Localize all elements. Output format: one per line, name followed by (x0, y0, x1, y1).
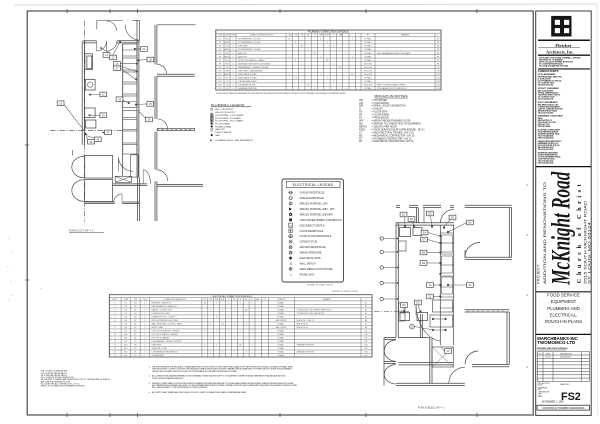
svg-text:1: 1 (339, 85, 340, 87)
svg-text:= 1000 BTU PER HOUR: = 1000 BTU PER HOUR (372, 126, 397, 128)
svg-text:P4: P4 (219, 49, 221, 51)
svg-text:CW: CW (226, 46, 229, 48)
svg-text:FOOD SERVICE: FOOD SERVICE (547, 293, 580, 298)
svg-text:3: 3 (246, 352, 247, 354)
svg-text:TEL FAX SAME: TEL FAX SAME (538, 125, 551, 128)
svg-text:2: 2 (144, 317, 145, 319)
svg-text:E9: E9 (422, 261, 426, 265)
svg-text:HW: HW (226, 70, 229, 72)
svg-text:E1: E1 (125, 303, 127, 305)
svg-text:WIRE TABLE W SINK: WIRE TABLE W SINK (238, 77, 257, 80)
svg-text:IN FLOOR: IN FLOOR (364, 70, 373, 72)
svg-text:HW: HW (226, 39, 229, 41)
svg-text:ABV CEILING: ABV CEILING (276, 326, 287, 329)
svg-text:HWCO: HWCO (224, 74, 230, 76)
svg-text:2: 2 (320, 56, 321, 58)
svg-text:OF WALL: OF WALL (364, 87, 371, 90)
svg-text:ELECTRICAL CONNECTION SCHEDULE: ELECTRICAL CONNECTION SCHEDULE (212, 295, 252, 298)
svg-text:E5: E5 (125, 317, 127, 319)
svg-text:E13: E13 (124, 345, 127, 347)
svg-text:P6: P6 (437, 56, 439, 58)
svg-text:E16: E16 (124, 355, 127, 357)
svg-text:ROUGH-IN PLANS: ROUGH-IN PLANS (545, 319, 582, 324)
svg-text:3: 3 (233, 88, 234, 90)
svg-text:= COLD WATER: = COLD WATER (372, 102, 389, 105)
svg-text:PLUMBING AND: PLUMBING AND (547, 306, 579, 311)
svg-text:EQUIPMENT: EQUIPMENT (551, 299, 577, 304)
svg-text:1: 1 (333, 46, 334, 48)
svg-text:1: 1 (327, 78, 328, 80)
svg-text:3: 3 (144, 320, 145, 322)
svg-text:WIRING PRESSURE: WIRING PRESSURE (300, 253, 322, 255)
svg-text:P9: P9 (437, 67, 439, 69)
svg-text:1: 1 (346, 53, 347, 55)
svg-text:1: 1 (314, 70, 315, 72)
svg-text:OF WALL: OF WALL (364, 41, 371, 44)
svg-text:E6: E6 (125, 320, 127, 322)
svg-text:TEL (636) 527-0800: TEL (636) 527-0800 (538, 149, 553, 151)
svg-text:PLAN A CUT 1/4" = 1': PLAN A CUT 1/4" = 1' (69, 229, 95, 233)
svg-text:SUPPLY FAN: SUPPLY FAN (152, 326, 164, 329)
svg-text:3: 3 (210, 310, 211, 312)
svg-text:1: 1 (233, 39, 234, 41)
svg-text:McKnight Road: McKnight Road (546, 171, 575, 285)
svg-text:4: 4 (115, 313, 116, 315)
svg-text:E2: E2 (365, 306, 367, 308)
svg-text:IN WALL: IN WALL (278, 333, 285, 336)
svg-text:1: 1 (234, 352, 235, 354)
svg-text:ICE MAKER FILTER: ICE MAKER FILTER (238, 84, 256, 87)
svg-text:5: 5 (222, 310, 223, 312)
svg-text:= DRAIN - SOLID CONNECTION: = DRAIN - SOLID CONNECTION (372, 105, 406, 108)
svg-text:1/2: 1/2 (288, 39, 290, 41)
svg-text:CONVENIENCE RECEPTACLE: CONVENIENCE RECEPTACLE (152, 351, 179, 354)
svg-text:8: 8 (228, 317, 229, 319)
svg-text:Church of Christ: Church of Christ (576, 183, 583, 283)
svg-text:2: 2 (233, 85, 234, 87)
svg-text:6: 6 (234, 338, 235, 340)
svg-text:4: 4 (204, 317, 205, 319)
svg-text:= BRANCH TO CONNECTION OF EQUI: = BRANCH TO CONNECTION OF EQUIPMENT (372, 122, 422, 125)
svg-text:6: 6 (210, 352, 211, 354)
svg-text:IN WALL: IN WALL (278, 309, 285, 312)
svg-text:ELECTRICAL LEGEND: ELECTRICAL LEGEND (293, 183, 334, 187)
svg-text:E11: E11 (365, 338, 368, 340)
svg-text:TYPICAL 120V ONLY, VERIFY, SEE: TYPICAL 120V ONLY, VERIFY, SEE NOTE 2 (297, 309, 332, 312)
svg-text:IN WALL: IN WALL (278, 354, 285, 357)
svg-text:TEL (314) 432-0102: TEL (314) 432-0102 (538, 97, 553, 100)
svg-text:IN WALL: IN WALL (278, 337, 285, 340)
svg-text:1: 1 (233, 81, 234, 83)
svg-text:FA: FA (359, 117, 362, 120)
svg-text:ROUGH-IN NOTES: ROUGH-IN NOTES (375, 95, 408, 98)
svg-text:4: 4 (233, 49, 234, 51)
svg-text:P3: P3 (219, 46, 221, 48)
svg-text:WIRE TABLE W SINK: WIRE TABLE W SINK (238, 73, 257, 76)
svg-text:E7: E7 (422, 238, 426, 242)
svg-text:CONVECTION OVEN: CONVECTION OVEN (152, 313, 171, 315)
svg-text:SEE NOTE 2,3: SEE NOTE 2,3 (297, 324, 309, 326)
svg-text:FSES = FOOD SERVICE EQUIPMENT: FSES = FOOD SERVICE EQUIPMENT SUPPLIER (41, 386, 86, 388)
svg-text:SYM: SYM (225, 35, 229, 37)
svg-text:IN WALL: IN WALL (278, 351, 285, 354)
svg-text:COLD FOOD STATION - MOBILE: COLD FOOD STATION - MOBILE (152, 330, 181, 333)
svg-text:8: 8 (204, 331, 205, 333)
svg-text:E11: E11 (124, 338, 127, 340)
svg-text:P11: P11 (218, 74, 221, 76)
svg-text:1/2: 1/2 (294, 78, 296, 80)
svg-text:KITCHEN/PREP COOLER: KITCHEN/PREP COOLER (238, 42, 261, 44)
svg-text:PROJECT:: PROJECT: (537, 264, 541, 284)
svg-text:8: 8 (115, 327, 116, 329)
svg-text:DIRECT WASTE: DIRECT WASTE (215, 131, 232, 134)
svg-text:SINGLE RECEPTACLE: SINGLE RECEPTACLE (300, 197, 325, 200)
svg-text:P15: P15 (436, 88, 439, 90)
svg-text:P10: P10 (218, 70, 221, 72)
svg-text:P13: P13 (218, 81, 221, 83)
svg-text:E1: E1 (402, 213, 406, 217)
svg-text:4: 4 (233, 78, 234, 80)
svg-text:16: 16 (114, 355, 116, 357)
svg-text:12: 12 (114, 341, 116, 343)
svg-text:OF WALL: OF WALL (364, 59, 371, 62)
svg-text:CONNECTION DESCRIPTION: CONNECTION DESCRIPTION (249, 35, 273, 37)
svg-text:PIPE RAISED/DROP PLUMB IN FLR: PIPE RAISED/DROP PLUMB IN FLR (377, 87, 408, 90)
svg-text:2: 2 (295, 42, 296, 44)
svg-text:1/2: 1/2 (326, 60, 328, 62)
svg-text:120: 120 (239, 345, 242, 347)
svg-text:E2: E2 (125, 306, 127, 308)
svg-text:9: 9 (115, 331, 116, 333)
svg-text:120: 120 (245, 310, 248, 312)
svg-text:P11: P11 (436, 74, 439, 76)
svg-text:CONDUIT STUB: CONDUIT STUB (300, 242, 318, 244)
svg-text:ABV CEILING: ABV CEILING (276, 319, 287, 322)
svg-text:1/2: 1/2 (313, 53, 315, 55)
svg-text:13: 13 (114, 345, 116, 347)
svg-text:1: 1 (301, 63, 302, 65)
svg-text:E12: E12 (124, 341, 127, 343)
svg-text:ALL ROUGH-IN LOCATIONS DIMENSI: ALL ROUGH-IN LOCATIONS DIMENSIONED ON PL… (216, 92, 346, 95)
svg-text:ELECTRICAL,: ELECTRICAL, (550, 312, 578, 317)
svg-text:CONSTRUCTION/BID DRAWINGS: CONSTRUCTION/BID DRAWINGS (542, 406, 585, 410)
svg-text:1: 1 (289, 56, 290, 58)
svg-text:KITCHEN/PREP COOLER: KITCHEN/PREP COOLER (238, 39, 261, 41)
svg-text:SPECIAL PURPOSE, 120V: SPECIAL PURPOSE, 120V (300, 203, 329, 206)
svg-text:CONSULTANTS: CONSULTANTS (538, 69, 559, 73)
svg-text:5: 5 (216, 345, 217, 347)
svg-text:3: 3 (320, 74, 321, 76)
svg-text:P3: P3 (437, 46, 439, 48)
svg-text:FD: FD (359, 115, 362, 117)
svg-text:HW + CW SUPPLY: HW + CW SUPPLY (215, 109, 234, 111)
svg-text:E14: E14 (364, 348, 367, 350)
svg-text:1: 1 (115, 303, 116, 305)
svg-text:DISCONNECT SWITCH: DISCONNECT SWITCH (300, 225, 325, 227)
svg-text:1: 1 (540, 357, 541, 359)
svg-text:IN WALL: IN WALL (278, 340, 285, 343)
svg-text:P7: P7 (437, 60, 439, 62)
svg-text:OF WALL: OF WALL (364, 38, 371, 41)
svg-text:ADDENDUM 1: ADDENDUM 1 (560, 356, 571, 359)
svg-text:E8: E8 (125, 327, 127, 329)
svg-text:HWCO: HWCO (224, 42, 230, 44)
svg-text:CW: CW (226, 53, 229, 55)
svg-text:FIELD WIRED LIGHT FIXTURE: FIELD WIRED LIGHT FIXTURE (300, 269, 333, 271)
svg-text:HOT FOOD STATION + TABLE: HOT FOOD STATION + TABLE (238, 59, 265, 62)
svg-text:= FOOD SERVICE EQUIP SUPPLIER/: = FOOD SERVICE EQUIP SUPPLIER/SEE - DIV … (372, 129, 426, 131)
svg-text:FLOOR SINK - FULL GRATE: FLOOR SINK - FULL GRATE (215, 120, 243, 123)
svg-text:2: 2 (333, 63, 334, 65)
svg-text:CONNECTION DESCRIPTION: CONNECTION DESCRIPTION (164, 299, 187, 301)
svg-text:TEL (314) 739-2666: TEL (314) 739-2666 (538, 111, 553, 114)
svg-text:E3: E3 (365, 310, 367, 312)
svg-text:Architects, Inc.: Architects, Inc. (546, 50, 574, 55)
svg-text:P10: P10 (436, 70, 439, 72)
svg-text:E7: E7 (125, 324, 127, 326)
svg-text:1: 1 (144, 345, 145, 347)
svg-text:IN FLOOR: IN FLOOR (364, 67, 373, 69)
svg-text:1: 1 (216, 331, 217, 333)
svg-text:FLOOR SINK - 1/2LF GRATE: FLOOR SINK - 1/2LF GRATE (215, 114, 244, 117)
svg-text:PC: PC (359, 138, 363, 140)
svg-text:= FLOOR DRAIN: = FLOOR DRAIN (372, 114, 390, 117)
svg-text:AFF: AFF (339, 34, 342, 37)
svg-text:ALL SUPPLY AND SPARE WALL SWIT: ALL SUPPLY AND SPARE WALL SWITCHES FOR H… (152, 391, 247, 394)
svg-text:E10: E10 (364, 334, 367, 336)
svg-text:GENERAL PURPOSE FLOOR DRAIN: GENERAL PURPOSE FLOOR DRAIN (238, 62, 271, 65)
svg-text:IN WALL: IN WALL (278, 316, 285, 319)
svg-text:P4: P4 (437, 49, 439, 51)
svg-text:8: 8 (222, 352, 223, 354)
svg-text:4: 4 (233, 63, 234, 65)
svg-text:EXHAUST HOOD + LIGHTS: EXHAUST HOOD + LIGHTS (152, 316, 176, 319)
svg-text:1: 1 (144, 303, 145, 305)
svg-text:OF WALL: OF WALL (364, 55, 371, 58)
svg-text:SEE NOTE 2,3: SEE NOTE 2,3 (297, 327, 309, 329)
svg-text:1/2: 1/2 (301, 46, 303, 48)
svg-text:GAS: GAS (215, 134, 220, 137)
svg-text:P1: P1 (437, 39, 439, 41)
svg-text:FS2: FS2 (561, 391, 581, 403)
svg-text:FIRE SUPPRESSION SYSTEM: FIRE SUPPRESSION SYSTEM (152, 320, 179, 322)
svg-text:HW: HW (226, 63, 229, 65)
svg-text:IN FLOOR: IN FLOOR (364, 74, 373, 76)
svg-text:IN FLOOR: IN FLOOR (364, 85, 373, 87)
svg-text:P5: P5 (437, 53, 439, 55)
svg-text:ST. LOUIS, MO 63124: ST. LOUIS, MO 63124 (587, 222, 591, 284)
svg-text:2: 2 (289, 74, 290, 76)
svg-text:HW OR CW SUPPLY: HW OR CW SUPPLY (215, 112, 236, 114)
svg-text:5: 5 (240, 331, 241, 333)
svg-text:= FROM ABOVE: = FROM ABOVE (372, 117, 390, 120)
svg-text:TWOMOMCG·LTD: TWOMOMCG·LTD (537, 340, 576, 345)
svg-text:P14: P14 (436, 85, 439, 87)
svg-text:2: 2 (234, 324, 235, 326)
svg-text:E9: E9 (125, 331, 127, 333)
svg-text:PHONE JACK: PHONE JACK (300, 273, 315, 276)
svg-text:E3: E3 (428, 212, 432, 216)
svg-text:3: 3 (144, 331, 145, 333)
svg-text:PLUMBING LEGEND: PLUMBING LEGEND (211, 103, 245, 107)
svg-text:SHEET NO.: SHEET NO. (560, 384, 570, 386)
svg-text:7: 7 (234, 310, 235, 312)
svg-text:GAS DRY: GAS DRY (215, 128, 225, 131)
svg-text:2: 2 (210, 338, 211, 340)
svg-text:GROUND RECEPTACLE: GROUND RECEPTACLE (300, 246, 326, 249)
svg-text:KITCHEN/PREP COOLER: KITCHEN/PREP COOLER (238, 49, 261, 51)
svg-text:MCKNELL FL 333085 11/01/99: MCKNELL FL 333085 11/01/99 (332, 291, 358, 293)
svg-text:3: 3 (352, 56, 353, 58)
svg-text:DISPOSER: DISPOSER (238, 46, 248, 48)
svg-text:FLOOR RECEPTACLE: FLOOR RECEPTACLE (300, 230, 324, 233)
svg-text:IN WALL: IN WALL (278, 312, 285, 315)
svg-text:P5: P5 (219, 53, 221, 55)
svg-text:3: 3 (115, 310, 116, 312)
svg-text:WALL SWITCH: WALL SWITCH (300, 262, 316, 265)
svg-text:5: 5 (115, 317, 116, 319)
svg-text:REFRIGERATOR - REACH IN: REFRIGERATOR - REACH IN (152, 305, 178, 308)
svg-text:AIRDOOR: AIRDOOR (238, 52, 247, 55)
svg-text:TEL (314) 993-4440 FAX 993-6: TEL (314) 993-4440 FAX 993-6686 (539, 64, 568, 67)
svg-text:= HEIGHT ABOVE FINISHED FLOOR: = HEIGHT ABOVE FINISHED FLOOR (372, 120, 411, 123)
svg-text:3: 3 (252, 317, 253, 319)
svg-text:E4: E4 (125, 313, 127, 315)
svg-text:TYPE: TYPE (143, 299, 147, 301)
svg-text:DUPLEX RECEPTACLE: DUPLEX RECEPTACLE (300, 192, 325, 195)
svg-text:P15: P15 (218, 88, 221, 90)
svg-text:E6: E6 (416, 301, 420, 305)
svg-text:= PLUMBING CONTRACTOR - DIV 15: = PLUMBING CONTRACTOR - DIV 15 (372, 137, 413, 140)
svg-text:OF WALL: OF WALL (364, 48, 371, 51)
svg-text:2: 2 (233, 56, 234, 58)
svg-text:3: 3 (228, 331, 229, 333)
svg-text:HWCO: HWCO (224, 49, 230, 51)
svg-text:CONN: CONN (217, 35, 223, 37)
svg-text:4: 4 (228, 303, 229, 305)
svg-text:◆: ◆ (210, 139, 212, 142)
svg-text:8: 8 (246, 338, 247, 340)
svg-text:TOASTER - CONV: TOASTER - CONV (152, 347, 168, 350)
svg-text:120: 120 (221, 324, 224, 326)
svg-text:1: 1 (320, 39, 321, 41)
svg-text:HP: HP (204, 299, 206, 301)
svg-text:E3: E3 (125, 310, 127, 312)
svg-text:ICE MACHINE W BIN: ICE MACHINE W BIN (238, 80, 257, 83)
svg-text:CW: CW (295, 35, 298, 37)
svg-text:= FLOOR SINK: = FLOOR SINK (372, 112, 388, 114)
svg-text:E15: E15 (364, 352, 367, 354)
svg-text:E6: E6 (468, 221, 472, 225)
svg-text:FLOOR DRAIN: FLOOR DRAIN (215, 122, 230, 125)
svg-text:MCKNELL PL 333085 11/01/99: MCKNELL PL 333085 11/01/99 (307, 285, 333, 287)
svg-text:= ARCHITECTURAL TRADES - DIV 2: = ARCHITECTURAL TRADES - DIV 2-10 (372, 131, 415, 134)
svg-text:8: 8 (252, 303, 253, 305)
svg-text:2: 2 (115, 306, 116, 308)
svg-text:E12: E12 (364, 341, 367, 343)
svg-text:6: 6 (216, 317, 217, 319)
svg-text:KBTUH: KBTUH (359, 126, 367, 128)
svg-text:GENERAL PURPOSE: GENERAL PURPOSE (297, 351, 315, 354)
svg-text:DIR: DIR (359, 106, 363, 108)
svg-text:FAX (770) 448-0599: FAX (770) 448-0599 (538, 136, 554, 139)
svg-text:P8: P8 (437, 63, 439, 65)
svg-text:GENERAL PURPOSE: GENERAL PURPOSE (238, 87, 257, 90)
svg-text:FREEZER - REACH IN: FREEZER - REACH IN (152, 302, 172, 305)
svg-text:2: 2 (144, 348, 145, 350)
svg-text:OF WALL: OF WALL (364, 52, 371, 55)
svg-text:15: 15 (114, 352, 116, 354)
svg-text:Fletcher: Fletcher (555, 43, 571, 48)
svg-text:1/2: 1/2 (351, 74, 353, 76)
svg-text:3: 3 (204, 345, 205, 347)
svg-text:E15: E15 (124, 352, 127, 354)
svg-text:BTUH: BTUH (325, 35, 330, 37)
svg-text:2: 2 (346, 70, 347, 72)
svg-text:OF WALL: OF WALL (364, 80, 371, 83)
svg-text:1: 1 (240, 317, 241, 319)
svg-text:= HOT WATER: = HOT WATER (372, 99, 388, 102)
svg-text:11: 11 (114, 338, 116, 340)
svg-text:7: 7 (210, 324, 211, 326)
svg-text:AIRDOOR: AIRDOOR (238, 55, 247, 58)
svg-text:GENERAL PURPOSE: GENERAL PURPOSE (297, 344, 315, 347)
svg-text:PLUMBING NOTE - SEE REFERENCE: PLUMBING NOTE - SEE REFERENCE (215, 140, 253, 142)
svg-text:P2: P2 (437, 42, 439, 44)
svg-text:HWCO: HWCO (224, 56, 230, 58)
svg-text:PLUMBING CONNECTION SCHEDULE: PLUMBING CONNECTION SCHEDULE (308, 31, 350, 33)
svg-text:P2: P2 (219, 42, 221, 44)
svg-text:SEE NOTE 1, SEE 2,3: SEE NOTE 1, SEE 2,3 (297, 320, 315, 322)
svg-text:3: 3 (144, 310, 145, 312)
svg-text:FLOOR SINK - 3/4 GRATE: FLOOR SINK - 3/4 GRATE (215, 117, 241, 120)
svg-text:1: 1 (144, 355, 145, 357)
svg-text:E10: E10 (124, 334, 127, 336)
svg-text:2: 2 (301, 81, 302, 83)
svg-text:E8: E8 (365, 327, 367, 329)
svg-text:10: 10 (114, 334, 116, 336)
svg-text:3: 3 (233, 46, 234, 48)
svg-text:1/2: 1/2 (307, 85, 309, 87)
svg-text:HW: HW (289, 35, 292, 37)
svg-text:= GAS(LP): = GAS(LP) (372, 108, 383, 111)
svg-text:14: 14 (114, 348, 116, 350)
svg-text:FSES: FSES (359, 129, 365, 131)
svg-text:1: 1 (233, 67, 234, 69)
svg-text:E5: E5 (365, 317, 367, 319)
svg-text:P1: P1 (219, 39, 221, 41)
svg-text:E5: E5 (402, 303, 406, 307)
svg-text:OF WALL: OF WALL (364, 77, 371, 80)
svg-text:1: 1 (144, 324, 145, 326)
svg-text:2: 2 (352, 39, 353, 41)
svg-text:REMARKS: REMARKS (401, 34, 410, 37)
svg-text:7: 7 (115, 324, 116, 326)
svg-text:DS: DS (289, 225, 293, 227)
svg-text:B/C: B/C (359, 123, 363, 125)
svg-text:3: 3 (346, 88, 347, 90)
svg-text:HOT FOOD CABINET: HOT FOOD CABINET (152, 337, 171, 340)
svg-text:DISHWASHER - UNDERCOUNTER: DISHWASHER - UNDERCOUNTER (238, 66, 269, 69)
svg-text:P6: P6 (219, 56, 221, 58)
svg-text:E7: E7 (365, 324, 367, 326)
svg-text:3: 3 (333, 81, 334, 83)
svg-text:E9: E9 (365, 331, 367, 333)
svg-text:DISPOSER - DISHWASHER: DISPOSER - DISHWASHER (238, 69, 263, 72)
svg-text:E2: E2 (410, 217, 414, 221)
svg-text:FAX (314) 862-2228: FAX (314) 862-2228 (538, 162, 554, 165)
svg-text:TYPICAL 120V ONLY, SEE NOTE 2: TYPICAL 120V ONLY, SEE NOTE 2 (297, 312, 325, 315)
